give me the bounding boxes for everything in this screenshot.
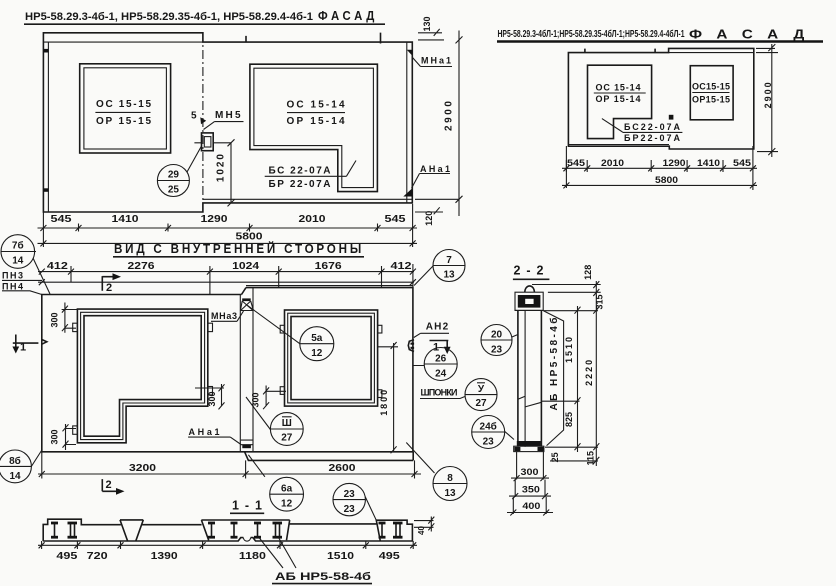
svg-text:2220: 2220 (584, 360, 594, 386)
svg-text:545: 545 (385, 214, 407, 225)
svg-text:495: 495 (379, 551, 401, 562)
svg-text:7б: 7б (12, 240, 24, 252)
svg-text:7: 7 (446, 255, 452, 266)
svg-text:2010: 2010 (299, 214, 327, 225)
svg-text:АБ НР5-58-4б: АБ НР5-58-4б (548, 318, 560, 411)
svg-text:1180: 1180 (239, 551, 267, 562)
svg-text:1410: 1410 (112, 214, 140, 225)
svg-text:5800: 5800 (236, 231, 264, 242)
svg-text:ОС 15-14: ОС 15-14 (596, 83, 641, 93)
svg-text:ВИД С ВНУТРЕННЕЙ СТОРОНЫ: ВИД С ВНУТРЕННЕЙ СТОРОНЫ (114, 241, 364, 256)
svg-text:1020: 1020 (215, 154, 226, 182)
svg-text:128: 128 (583, 265, 593, 280)
svg-text:26: 26 (435, 354, 447, 365)
svg-text:825: 825 (564, 412, 574, 427)
svg-text:315: 315 (594, 294, 604, 309)
svg-text:2900: 2900 (763, 82, 773, 108)
svg-text:МНа3: МНа3 (211, 311, 237, 321)
svg-text:23: 23 (483, 437, 495, 448)
svg-text:ПН4: ПН4 (2, 281, 24, 291)
svg-text:545: 545 (733, 158, 751, 168)
svg-text:120: 120 (424, 211, 434, 226)
svg-text:25: 25 (168, 185, 180, 196)
svg-text:400: 400 (522, 501, 540, 511)
svg-text:1-1: 1-1 (232, 499, 262, 513)
svg-text:24: 24 (435, 369, 447, 380)
svg-text:АНа1: АНа1 (420, 164, 450, 174)
svg-text:115: 115 (586, 451, 596, 466)
svg-text:ФАСАД: ФАСАД (318, 9, 378, 23)
svg-text:ОС15-15: ОС15-15 (692, 81, 730, 91)
svg-text:130: 130 (422, 16, 432, 31)
svg-text:300: 300 (50, 312, 60, 327)
svg-text:1510: 1510 (327, 551, 355, 562)
svg-text:2: 2 (106, 282, 112, 294)
svg-text:3200: 3200 (129, 463, 157, 474)
svg-text:23: 23 (344, 489, 356, 500)
svg-text:412: 412 (47, 261, 69, 272)
svg-text:1410: 1410 (697, 158, 720, 168)
svg-text:ПН3: ПН3 (2, 270, 24, 280)
svg-text:40: 40 (417, 526, 426, 535)
svg-text:29: 29 (168, 170, 180, 181)
svg-text:5: 5 (191, 111, 197, 122)
svg-text:2-2: 2-2 (514, 264, 544, 278)
svg-text:АН2: АН2 (426, 322, 450, 333)
svg-text:5а: 5а (311, 333, 323, 344)
svg-text:1800: 1800 (379, 390, 389, 416)
svg-text:2: 2 (106, 479, 112, 491)
svg-text:АНа1: АНа1 (189, 427, 221, 437)
svg-text:720: 720 (87, 551, 109, 562)
svg-text:1290: 1290 (663, 158, 686, 168)
svg-text:300: 300 (521, 467, 539, 477)
svg-text:8: 8 (447, 473, 453, 484)
svg-text:У: У (478, 384, 485, 395)
svg-text:1024: 1024 (232, 261, 260, 272)
svg-text:27: 27 (475, 398, 487, 409)
svg-text:БР 22-07А: БР 22-07А (269, 179, 331, 190)
svg-text:НР5-58.29.3-4бЛ-1;НР5-58.29.35: НР5-58.29.3-4бЛ-1;НР5-58.29.35-4бЛ-1;НР5… (498, 28, 685, 40)
svg-text:13: 13 (443, 270, 455, 281)
svg-text:ОР 15-14: ОР 15-14 (596, 94, 641, 104)
svg-text:1: 1 (20, 341, 26, 353)
svg-text:5800: 5800 (655, 175, 678, 185)
svg-text:8б: 8б (9, 455, 21, 467)
svg-text:13: 13 (444, 488, 456, 499)
svg-text:14: 14 (9, 471, 21, 482)
svg-text:412: 412 (391, 261, 413, 272)
svg-text:24б: 24б (480, 421, 497, 433)
svg-text:Ш: Ш (282, 418, 292, 429)
svg-text:БС 22-07А: БС 22-07А (269, 165, 331, 176)
svg-text:2600: 2600 (329, 463, 357, 474)
svg-text:6а: 6а (281, 484, 293, 495)
svg-text:545: 545 (567, 158, 585, 168)
svg-text:НР5-58.29.3-4б-1, НР5-58.29.35: НР5-58.29.3-4б-1, НР5-58.29.35-4б-1, НР5… (25, 11, 313, 23)
svg-text:1510: 1510 (564, 337, 574, 363)
svg-text:350: 350 (522, 485, 540, 495)
svg-text:23: 23 (344, 504, 356, 515)
svg-text:14: 14 (12, 256, 24, 267)
svg-text:МНа1: МНа1 (421, 56, 451, 66)
svg-text:27: 27 (281, 433, 293, 444)
svg-text:1390: 1390 (151, 551, 179, 562)
svg-text:12: 12 (281, 499, 293, 510)
svg-text:1676: 1676 (315, 261, 343, 272)
svg-text:23: 23 (491, 345, 503, 356)
svg-text:300: 300 (50, 429, 60, 444)
svg-text:300: 300 (207, 391, 217, 406)
svg-text:МН5: МН5 (215, 110, 242, 121)
svg-text:545: 545 (51, 214, 73, 225)
svg-text:12: 12 (311, 348, 323, 359)
svg-text:2010: 2010 (601, 158, 624, 168)
svg-text:ОР15-15: ОР15-15 (692, 95, 730, 105)
svg-text:АБ НР5-58-4б: АБ НР5-58-4б (275, 571, 371, 583)
svg-text:ШПОНКИ: ШПОНКИ (421, 388, 459, 398)
svg-text:ФАСАД: ФАСАД (689, 28, 819, 42)
svg-text:1290: 1290 (201, 214, 229, 225)
svg-text:20: 20 (491, 330, 503, 341)
svg-text:495: 495 (56, 551, 78, 562)
svg-text:2276: 2276 (128, 261, 156, 272)
